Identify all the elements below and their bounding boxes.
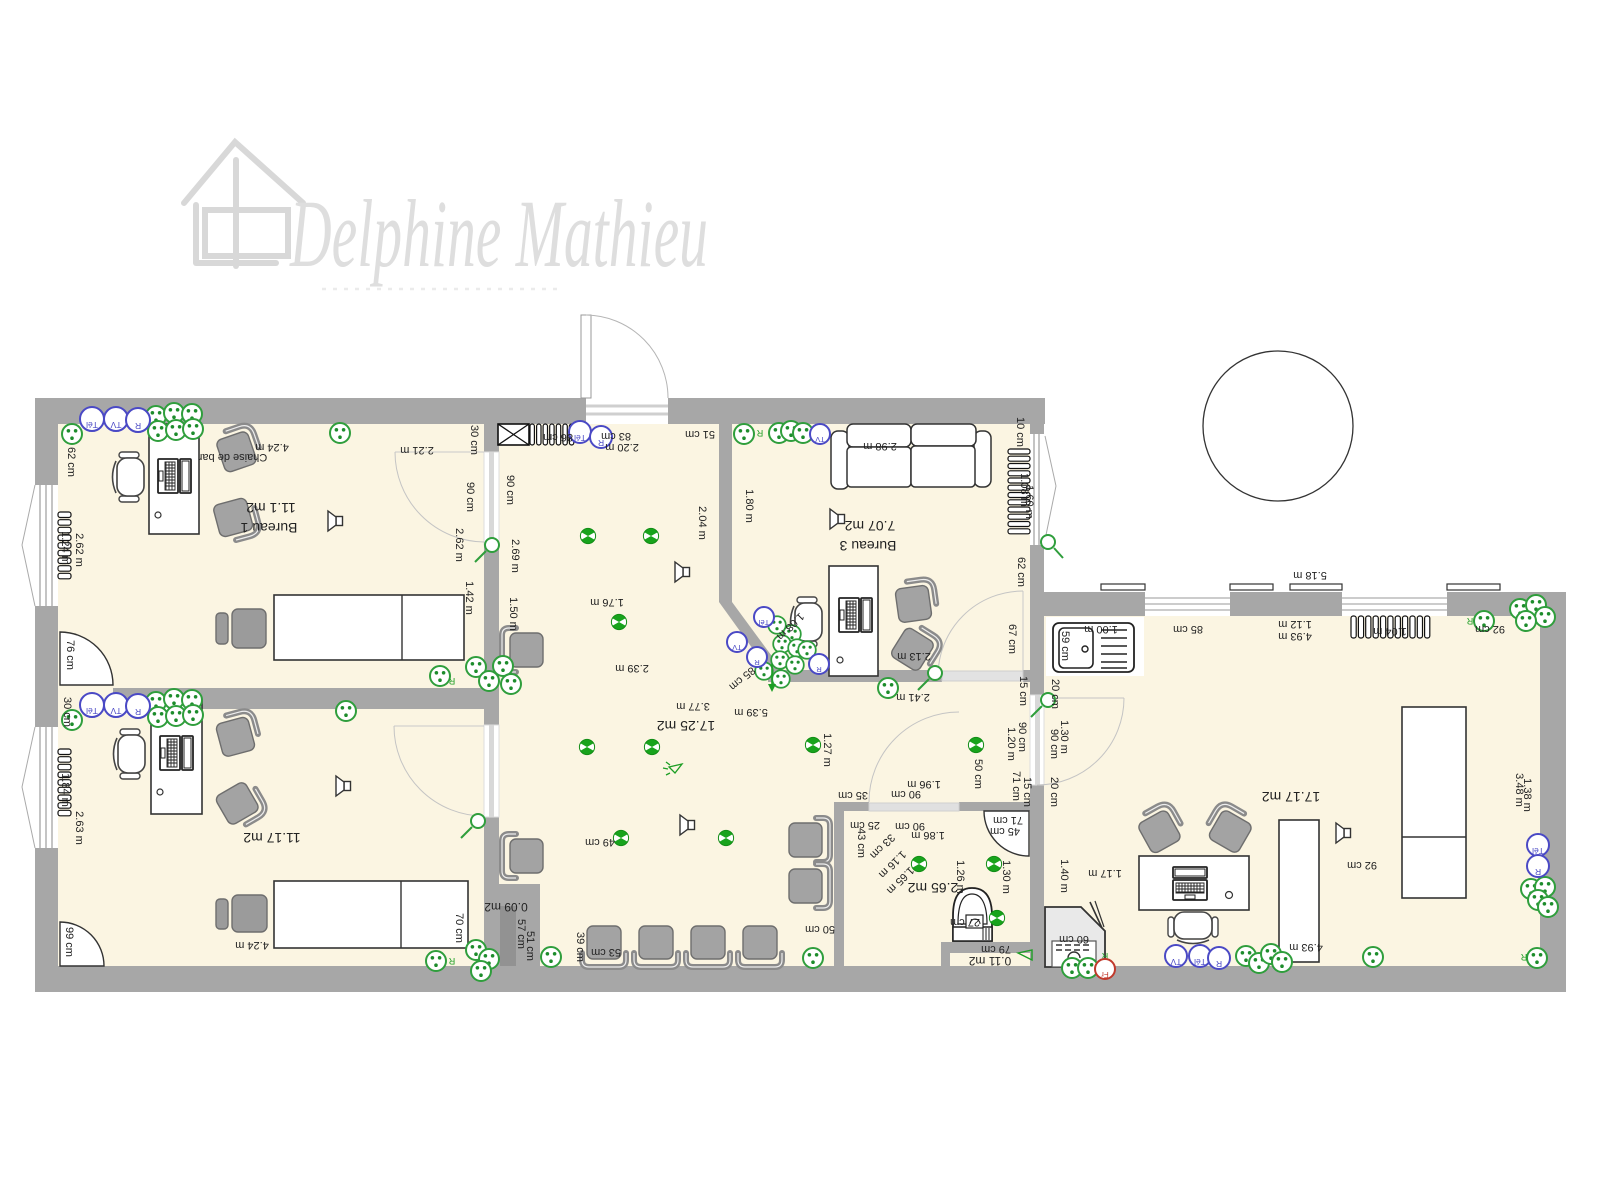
svg-text:5.39 m: 5.39 m bbox=[734, 706, 768, 718]
svg-text:Fr: Fr bbox=[1101, 970, 1109, 979]
svg-text:TV: TV bbox=[815, 435, 825, 444]
svg-text:4.24 m: 4.24 m bbox=[235, 939, 269, 951]
svg-text:83 cm: 83 cm bbox=[601, 430, 631, 442]
svg-text:1.40 m: 1.40 m bbox=[1058, 859, 1070, 893]
svg-text:Tél: Tél bbox=[86, 706, 98, 716]
svg-text:62 cm: 62 cm bbox=[65, 447, 77, 477]
svg-text:R: R bbox=[135, 707, 141, 717]
svg-text:Tél: Tél bbox=[758, 618, 769, 627]
svg-text:Bureau 3: Bureau 3 bbox=[839, 538, 896, 554]
svg-text:2.04 m: 2.04 m bbox=[696, 506, 708, 540]
svg-text:2.13 m: 2.13 m bbox=[897, 650, 931, 662]
svg-text:85 cm: 85 cm bbox=[1173, 623, 1203, 635]
svg-text:1.38 m: 1.38 m bbox=[1521, 778, 1533, 812]
svg-text:39 cm: 39 cm bbox=[574, 932, 586, 962]
svg-text:1.30 m: 1.30 m bbox=[1000, 860, 1012, 894]
svg-text:R: R bbox=[1520, 952, 1527, 962]
svg-text:1.00 m: 1.00 m bbox=[1084, 623, 1118, 635]
svg-text:76 cm: 76 cm bbox=[64, 640, 76, 670]
svg-text:Chaise de bar: Chaise de bar bbox=[198, 451, 267, 463]
svg-text:0.09 m2: 0.09 m2 bbox=[484, 900, 528, 914]
svg-text:30 cm: 30 cm bbox=[61, 697, 73, 727]
svg-text:1.12 m: 1.12 m bbox=[1278, 618, 1312, 630]
svg-text:1.50 m: 1.50 m bbox=[507, 597, 519, 631]
svg-text:1.42 m: 1.42 m bbox=[463, 581, 475, 615]
svg-text:2.65 m2: 2.65 m2 bbox=[907, 880, 958, 896]
svg-text:3.77 m: 3.77 m bbox=[676, 700, 710, 712]
svg-text:1.80 m: 1.80 m bbox=[743, 489, 755, 523]
svg-text:1.86 m: 1.86 m bbox=[911, 829, 945, 841]
svg-text:92 cm: 92 cm bbox=[1347, 859, 1377, 871]
svg-text:R: R bbox=[1466, 616, 1473, 626]
svg-text:2.98 m: 2.98 m bbox=[863, 440, 897, 452]
svg-text:TV: TV bbox=[1170, 957, 1181, 967]
svg-text:R: R bbox=[448, 676, 455, 686]
svg-text:59 cm: 59 cm bbox=[1059, 631, 1071, 661]
svg-text:50 cm: 50 cm bbox=[805, 923, 835, 935]
svg-text:10 cm: 10 cm bbox=[1014, 417, 1026, 447]
svg-text:62 cm: 62 cm bbox=[1015, 557, 1027, 587]
svg-text:35 cm: 35 cm bbox=[838, 789, 868, 801]
svg-text:1.27 m: 1.27 m bbox=[821, 733, 833, 767]
svg-text:2.69 m: 2.69 m bbox=[509, 539, 521, 573]
svg-text:2.62 m: 2.62 m bbox=[73, 533, 85, 567]
svg-text:1.04 m: 1.04 m bbox=[1373, 625, 1407, 637]
svg-text:1.17 m: 1.17 m bbox=[1088, 867, 1122, 879]
svg-text:2.62 m: 2.62 m bbox=[453, 528, 465, 562]
svg-text:1.24 m: 1.24 m bbox=[59, 531, 71, 565]
svg-text:49 cm: 49 cm bbox=[585, 836, 615, 848]
svg-text:R: R bbox=[816, 665, 822, 674]
svg-text:79 cm: 79 cm bbox=[981, 943, 1011, 955]
svg-text:1.60 m: 1.60 m bbox=[1023, 485, 1035, 519]
svg-text:70 cm: 70 cm bbox=[453, 913, 465, 943]
svg-text:67 cm: 67 cm bbox=[1006, 624, 1018, 654]
svg-text:53 cm: 53 cm bbox=[591, 946, 621, 958]
svg-text:27 cm: 27 cm bbox=[950, 916, 980, 928]
svg-text:Tél: Tél bbox=[574, 433, 586, 443]
svg-text:4.93 m: 4.93 m bbox=[1278, 630, 1312, 642]
svg-text:Delphine Mathieu: Delphine Mathieu bbox=[289, 180, 708, 287]
svg-text:2.63 m: 2.63 m bbox=[73, 811, 85, 845]
svg-text:Tél: Tél bbox=[1194, 957, 1206, 967]
svg-text:1.96 m: 1.96 m bbox=[907, 778, 941, 790]
svg-text:Bureau 1: Bureau 1 bbox=[240, 520, 297, 536]
svg-text:2.21 m: 2.21 m bbox=[400, 444, 434, 456]
svg-text:17.17 m2: 17.17 m2 bbox=[1262, 789, 1321, 805]
svg-text:11.17 m2: 11.17 m2 bbox=[243, 830, 301, 846]
svg-text:90 cm: 90 cm bbox=[1048, 729, 1060, 759]
svg-text:TV: TV bbox=[110, 420, 121, 430]
svg-text:60 cm: 60 cm bbox=[1059, 933, 1089, 945]
svg-text:1.20 m: 1.20 m bbox=[1005, 727, 1017, 761]
svg-text:R: R bbox=[135, 421, 141, 431]
svg-text:20 cm: 20 cm bbox=[1049, 679, 1061, 709]
svg-text:R: R bbox=[1535, 867, 1541, 877]
svg-text:86 cm: 86 cm bbox=[543, 431, 573, 443]
svg-text:R: R bbox=[1216, 959, 1222, 969]
svg-text:30 cm: 30 cm bbox=[468, 425, 480, 455]
svg-text:71 cm: 71 cm bbox=[993, 814, 1023, 826]
svg-text:R: R bbox=[448, 956, 455, 966]
svg-text:R: R bbox=[754, 658, 760, 667]
svg-text:90 cm: 90 cm bbox=[464, 482, 476, 512]
svg-text:0.11 m2: 0.11 m2 bbox=[968, 954, 1011, 968]
svg-text:2.41 m: 2.41 m bbox=[896, 691, 930, 703]
svg-text:2.20 m: 2.20 m bbox=[605, 441, 639, 453]
svg-text:TV: TV bbox=[732, 643, 742, 652]
svg-text:4.93 m: 4.93 m bbox=[1289, 941, 1323, 953]
svg-text:43 cm: 43 cm bbox=[855, 828, 867, 858]
svg-text:90 cm: 90 cm bbox=[504, 475, 516, 505]
svg-text:R: R bbox=[756, 428, 763, 438]
svg-text:7.07 m2: 7.07 m2 bbox=[844, 518, 895, 534]
svg-text:17.25 m2: 17.25 m2 bbox=[657, 718, 716, 734]
svg-text:51 cm: 51 cm bbox=[685, 428, 715, 440]
svg-text:57 cm: 57 cm bbox=[515, 919, 527, 949]
svg-text:92 cm: 92 cm bbox=[1475, 623, 1505, 635]
svg-text:99 cm: 99 cm bbox=[63, 927, 75, 957]
svg-text:20 cm: 20 cm bbox=[1048, 777, 1060, 807]
svg-text:5.18 m: 5.18 m bbox=[1293, 569, 1327, 581]
svg-text:15 cm: 15 cm bbox=[1017, 676, 1029, 706]
svg-text:1.84 m: 1.84 m bbox=[59, 773, 71, 807]
svg-text:1.76 m: 1.76 m bbox=[590, 596, 624, 608]
svg-text:2.39 m: 2.39 m bbox=[615, 662, 649, 674]
svg-text:50 cm: 50 cm bbox=[972, 759, 984, 789]
svg-text:Tél: Tél bbox=[86, 420, 98, 430]
svg-text:11.1 m2: 11.1 m2 bbox=[246, 500, 296, 516]
svg-text:71 cm: 71 cm bbox=[1010, 771, 1022, 801]
svg-text:TV: TV bbox=[110, 706, 121, 716]
